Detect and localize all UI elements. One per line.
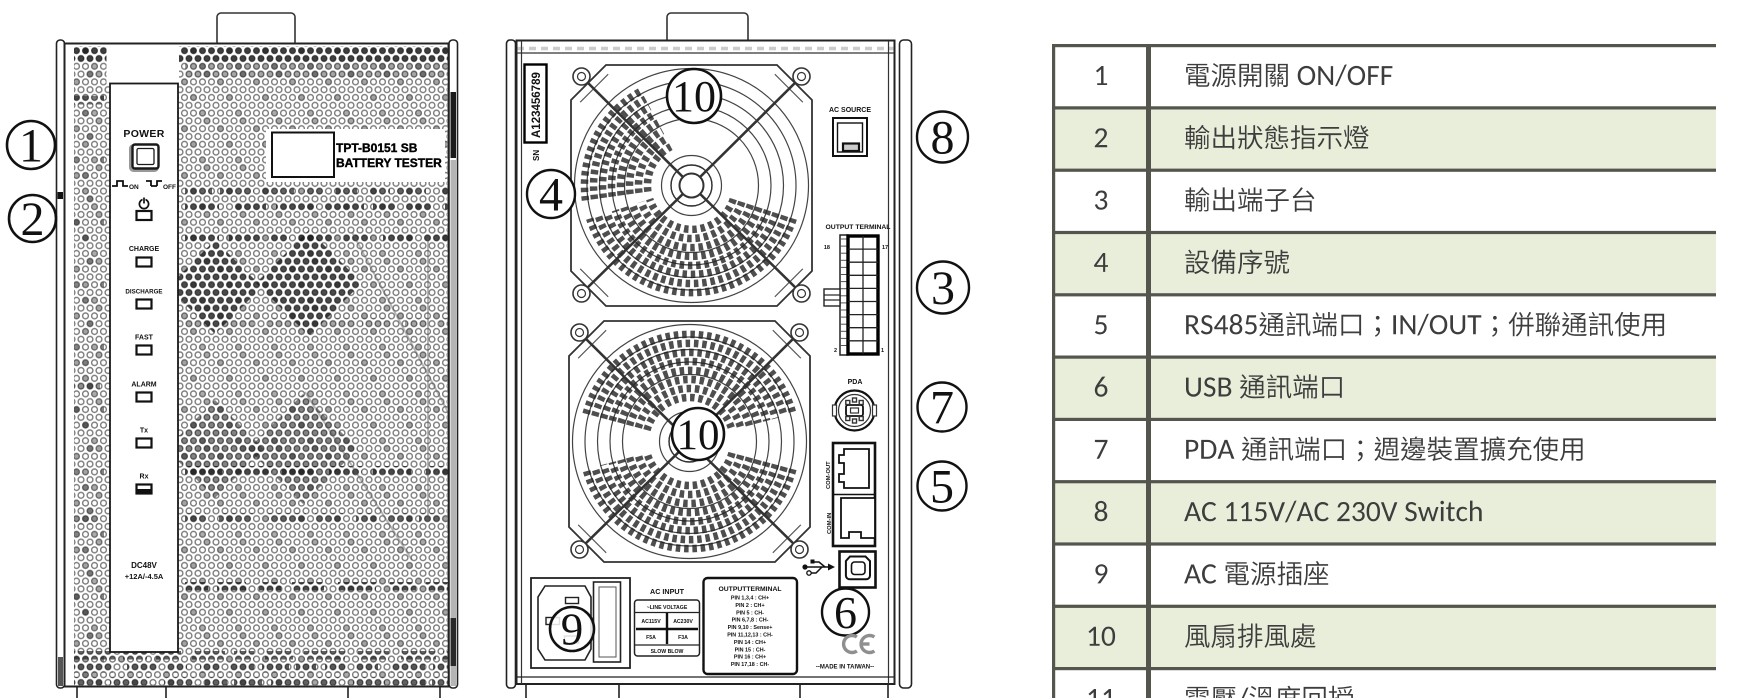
svg-text:PIN 11,12,13 : CH-: PIN 11,12,13 : CH- <box>727 633 773 639</box>
svg-text:Rx: Rx <box>140 474 149 481</box>
svg-text:17: 17 <box>882 245 888 251</box>
svg-text:2: 2 <box>834 348 837 354</box>
svg-text:PIN 1,3,4 : CH+: PIN 1,3,4 : CH+ <box>731 596 769 602</box>
svg-text:1: 1 <box>19 120 43 173</box>
svg-text:AC SOURCE: AC SOURCE <box>829 107 871 114</box>
svg-text:ON: ON <box>129 184 139 191</box>
svg-text:AC230V: AC230V <box>673 619 693 625</box>
svg-text:10: 10 <box>677 412 720 459</box>
svg-text:OFF: OFF <box>163 184 176 191</box>
svg-text:PIN 5 : CH-: PIN 5 : CH- <box>736 610 764 616</box>
svg-text:PIN 17,18 : CH-: PIN 17,18 : CH- <box>731 662 770 668</box>
svg-text:9: 9 <box>561 605 584 655</box>
svg-text:DISCHARGE: DISCHARGE <box>125 289 162 296</box>
svg-text:6: 6 <box>834 587 857 638</box>
svg-text:BATTERY TESTER: BATTERY TESTER <box>336 156 442 170</box>
svg-text:OUTPUTTERMINAL: OUTPUTTERMINAL <box>718 586 781 593</box>
svg-text:4: 4 <box>539 169 563 222</box>
svg-text:FAST: FAST <box>135 335 154 342</box>
svg-text:OUTPUT TERMINAL: OUTPUT TERMINAL <box>826 224 891 231</box>
svg-text:DC48V: DC48V <box>131 561 157 570</box>
svg-text:10: 10 <box>672 72 716 121</box>
svg-text:PIN 2 : CH+: PIN 2 : CH+ <box>735 603 764 609</box>
svg-text:--MADE IN TAIWAN--: --MADE IN TAIWAN-- <box>816 665 874 671</box>
svg-text:ALARM: ALARM <box>131 382 156 389</box>
svg-text:AC INPUT: AC INPUT <box>650 587 685 596</box>
svg-text:18: 18 <box>824 245 830 251</box>
svg-text:PIN 16 : CH+: PIN 16 : CH+ <box>734 655 766 661</box>
svg-text:SLOW BLOW: SLOW BLOW <box>651 649 684 655</box>
svg-text:5: 5 <box>930 461 954 514</box>
svg-text:PDA: PDA <box>848 379 863 386</box>
svg-text:+12A/-4.5A: +12A/-4.5A <box>125 572 164 581</box>
svg-text:F5A: F5A <box>646 635 656 641</box>
svg-text:COM-OUT: COM-OUT <box>826 461 832 489</box>
svg-text:7: 7 <box>930 382 954 435</box>
svg-text:SN: SN <box>532 150 541 161</box>
svg-text:PIN 15 : CH-: PIN 15 : CH- <box>735 647 766 653</box>
svg-text:3: 3 <box>931 262 955 315</box>
svg-text:2: 2 <box>21 193 45 246</box>
svg-text:Tx: Tx <box>140 428 148 435</box>
svg-text:PIN 9,10 : Sense+: PIN 9,10 : Sense+ <box>728 625 773 631</box>
svg-text:A123456789: A123456789 <box>531 72 543 138</box>
svg-text:COM-IN: COM-IN <box>827 513 833 534</box>
svg-text:F3A: F3A <box>678 635 688 641</box>
svg-text:TPT-B0151 SB: TPT-B0151 SB <box>336 141 418 155</box>
svg-text:1: 1 <box>881 348 884 354</box>
svg-text:~LINE VOLTAGE: ~LINE VOLTAGE <box>647 605 688 611</box>
svg-text:8: 8 <box>931 112 955 165</box>
svg-text:AC115V: AC115V <box>641 619 661 625</box>
svg-text:CHARGE: CHARGE <box>129 246 160 253</box>
svg-text:POWER: POWER <box>123 128 164 140</box>
svg-text:PIN 6,7,8 : CH-: PIN 6,7,8 : CH- <box>732 618 769 624</box>
svg-text:PIN 14 : CH+: PIN 14 : CH+ <box>734 640 766 646</box>
